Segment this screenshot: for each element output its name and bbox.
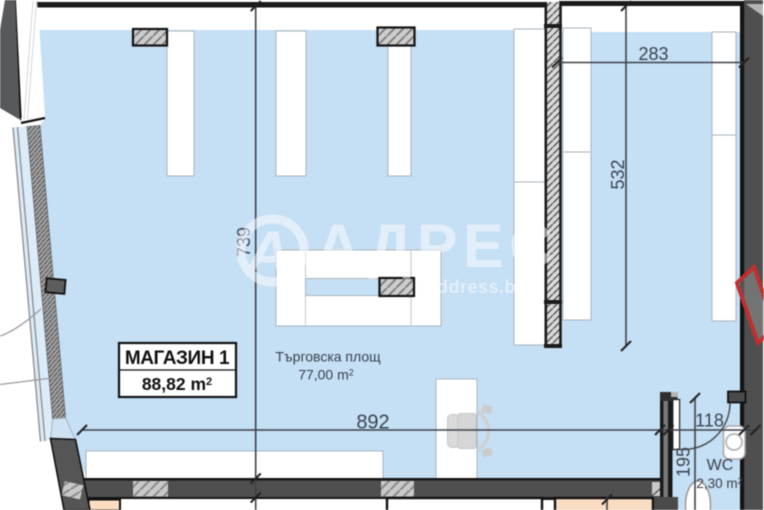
svg-text:WC: WC [707, 457, 734, 474]
svg-text:АДРЕС: АДРЕС [316, 212, 559, 280]
svg-text:892: 892 [356, 412, 389, 434]
svg-text:532: 532 [608, 159, 628, 189]
svg-text:88,82 m2: 88,82 m2 [142, 374, 212, 394]
svg-text:77,00 m2: 77,00 m2 [298, 367, 354, 383]
svg-text:ddress.b: ddress.b [437, 277, 516, 297]
svg-text:МАГАЗИН 1: МАГАЗИН 1 [125, 348, 230, 369]
svg-text:195: 195 [674, 447, 694, 477]
svg-text:118: 118 [695, 411, 724, 431]
svg-text:А: А [244, 219, 289, 286]
svg-text:283: 283 [638, 44, 668, 64]
svg-text:2,30 m2: 2,30 m2 [696, 476, 742, 491]
svg-text:Търговска площ: Търговска площ [275, 349, 381, 365]
